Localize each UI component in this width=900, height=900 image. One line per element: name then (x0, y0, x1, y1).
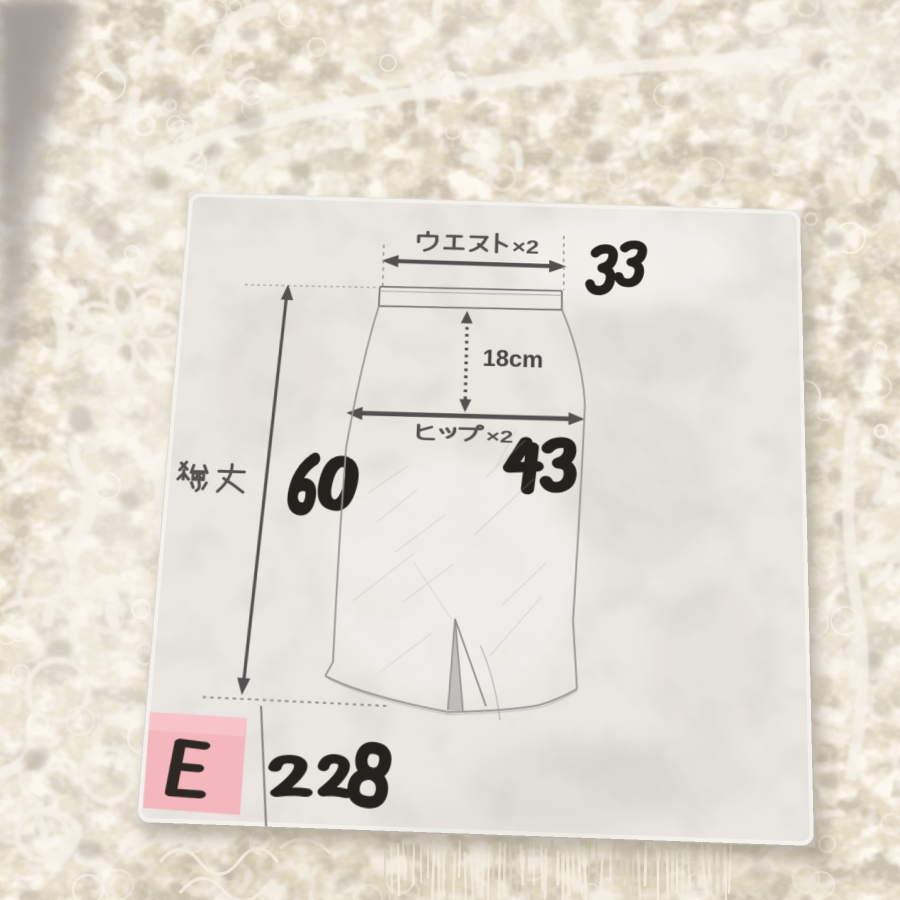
svg-text:×2: ×2 (486, 427, 514, 447)
svg-text:×2: ×2 (512, 237, 540, 259)
svg-text:18cm: 18cm (482, 345, 543, 373)
